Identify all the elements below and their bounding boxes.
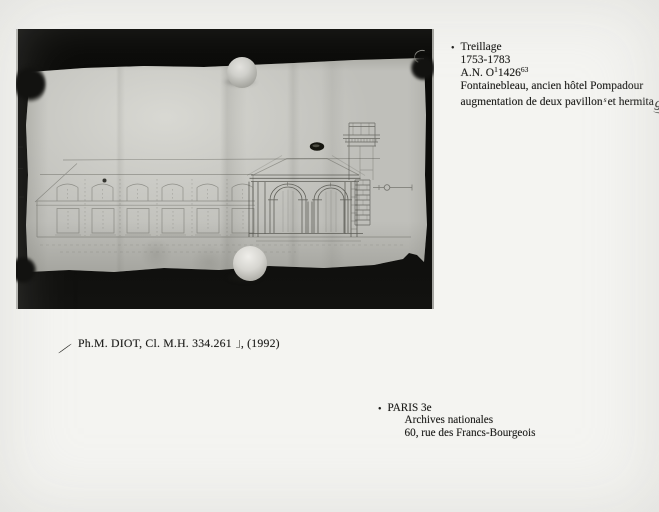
address-street: 60, rue des Francs-Bourgeois — [405, 427, 536, 439]
address-institution: Archives nationales — [405, 414, 536, 426]
paper-weight-top — [227, 57, 257, 88]
annotation-block: • Treillage 1753-1783 A.N. O1142663 Font… — [451, 41, 659, 109]
pavilion-drawing — [247, 156, 365, 242]
chimney-drawing — [343, 123, 412, 225]
description-part1: augmentation de deux pavillon — [461, 96, 603, 108]
photograph — [16, 29, 434, 309]
bullet-icon: • — [378, 403, 382, 440]
annotation-reference: A.N. O1142663 — [461, 67, 659, 80]
elevation-drawing — [16, 29, 434, 309]
handwritten-pen-mark — [236, 340, 240, 348]
address-block: • PARIS 3e Archives nationales 60, rue d… — [378, 402, 535, 439]
inserted-s-mark: s — [604, 95, 607, 104]
annotation-title: Treillage — [461, 41, 659, 54]
annotation-dates: 1753-1783 — [461, 54, 659, 67]
description-part2: et hermita — [608, 96, 654, 108]
wing-dashed-lines — [68, 179, 244, 236]
annotation-description: augmentation de deux pavillonset hermita… — [461, 93, 659, 109]
ink-blot — [310, 142, 324, 151]
caption-suffix: , (1992) — [241, 336, 280, 350]
reference-superscript-63: 63 — [521, 65, 529, 74]
bullet-icon: • — [451, 42, 455, 110]
reference-number: 1426 — [498, 67, 521, 79]
address-city: PARIS 3e — [388, 402, 536, 414]
paper-edge-marks — [18, 147, 24, 197]
reference-prefix: A.N. O — [461, 67, 495, 79]
annotation-lines: Treillage 1753-1783 A.N. O1142663 Fontai… — [461, 41, 659, 109]
archive-card-page: • Treillage 1753-1783 A.N. O1142663 Font… — [0, 0, 659, 512]
handwritten-slash-mark — [58, 343, 72, 353]
address-lines: PARIS 3e Archives nationales 60, rue des… — [388, 402, 536, 439]
caption-text: Ph.M. DIOT, Cl. M.H. 334.261 — [78, 336, 232, 350]
annotation-location: Fontainebleau, ancien hôtel Pompadour — [461, 80, 659, 93]
paper-weight-bottom — [233, 246, 267, 281]
left-wing-drawing — [35, 159, 411, 238]
ink-dot — [103, 179, 107, 183]
photo-caption: Ph.M. DIOT, Cl. M.H. 334.261, (1992) — [78, 336, 280, 351]
ground-guides — [40, 245, 406, 252]
